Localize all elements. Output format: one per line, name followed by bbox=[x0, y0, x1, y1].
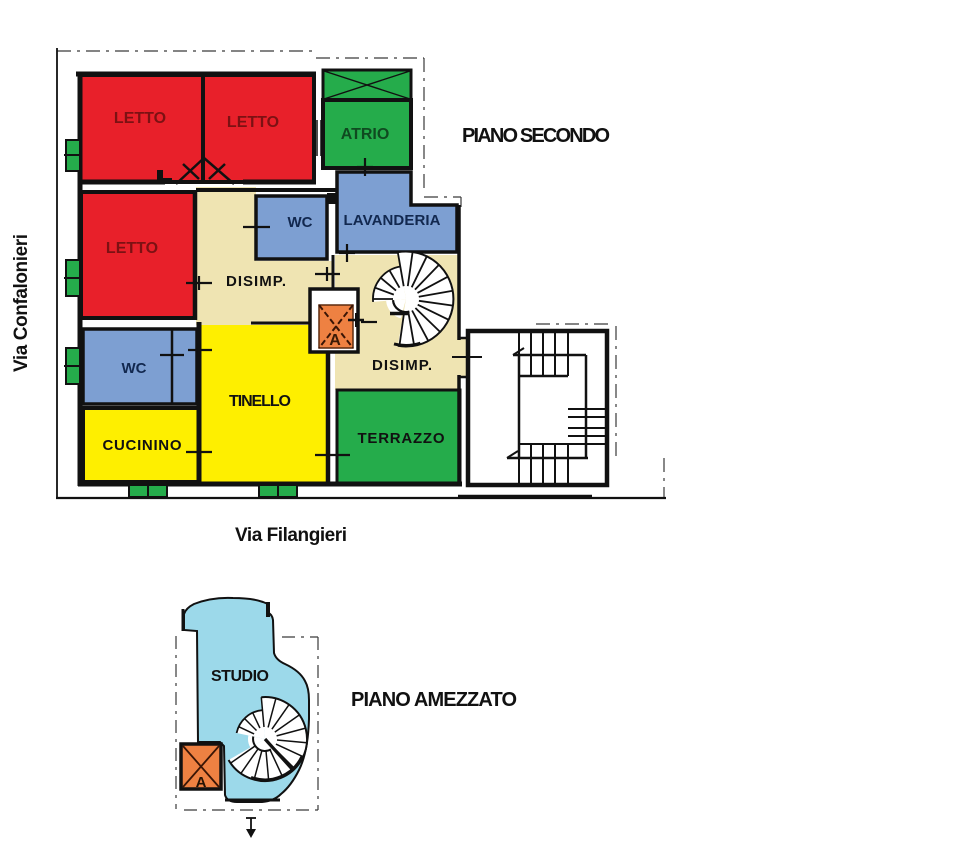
svg-text:WC: WC bbox=[288, 214, 313, 231]
svg-text:PIANO AMEZZATO: PIANO AMEZZATO bbox=[351, 689, 517, 711]
svg-text:PIANO SECONDO: PIANO SECONDO bbox=[462, 125, 610, 147]
svg-text:Via Filangieri: Via Filangieri bbox=[235, 525, 347, 546]
svg-text:DISIMP.: DISIMP. bbox=[372, 357, 432, 374]
svg-text:WC: WC bbox=[122, 360, 147, 377]
svg-text:TINELLO: TINELLO bbox=[229, 393, 291, 410]
svg-text:LETTO: LETTO bbox=[227, 114, 279, 131]
svg-text:A: A bbox=[329, 332, 341, 349]
svg-text:DISIMP.: DISIMP. bbox=[226, 273, 286, 290]
svg-text:ATRIO: ATRIO bbox=[341, 126, 390, 143]
svg-text:CUCININO: CUCININO bbox=[103, 437, 182, 454]
svg-text:LAVANDERIA: LAVANDERIA bbox=[344, 212, 441, 229]
svg-text:TERRAZZO: TERRAZZO bbox=[358, 430, 445, 447]
svg-text:STUDIO: STUDIO bbox=[211, 668, 269, 685]
svg-text:LETTO: LETTO bbox=[106, 240, 158, 257]
svg-text:Via Confalonieri: Via Confalonieri bbox=[11, 234, 32, 372]
svg-text:A: A bbox=[196, 774, 207, 791]
svg-text:LETTO: LETTO bbox=[114, 110, 166, 127]
